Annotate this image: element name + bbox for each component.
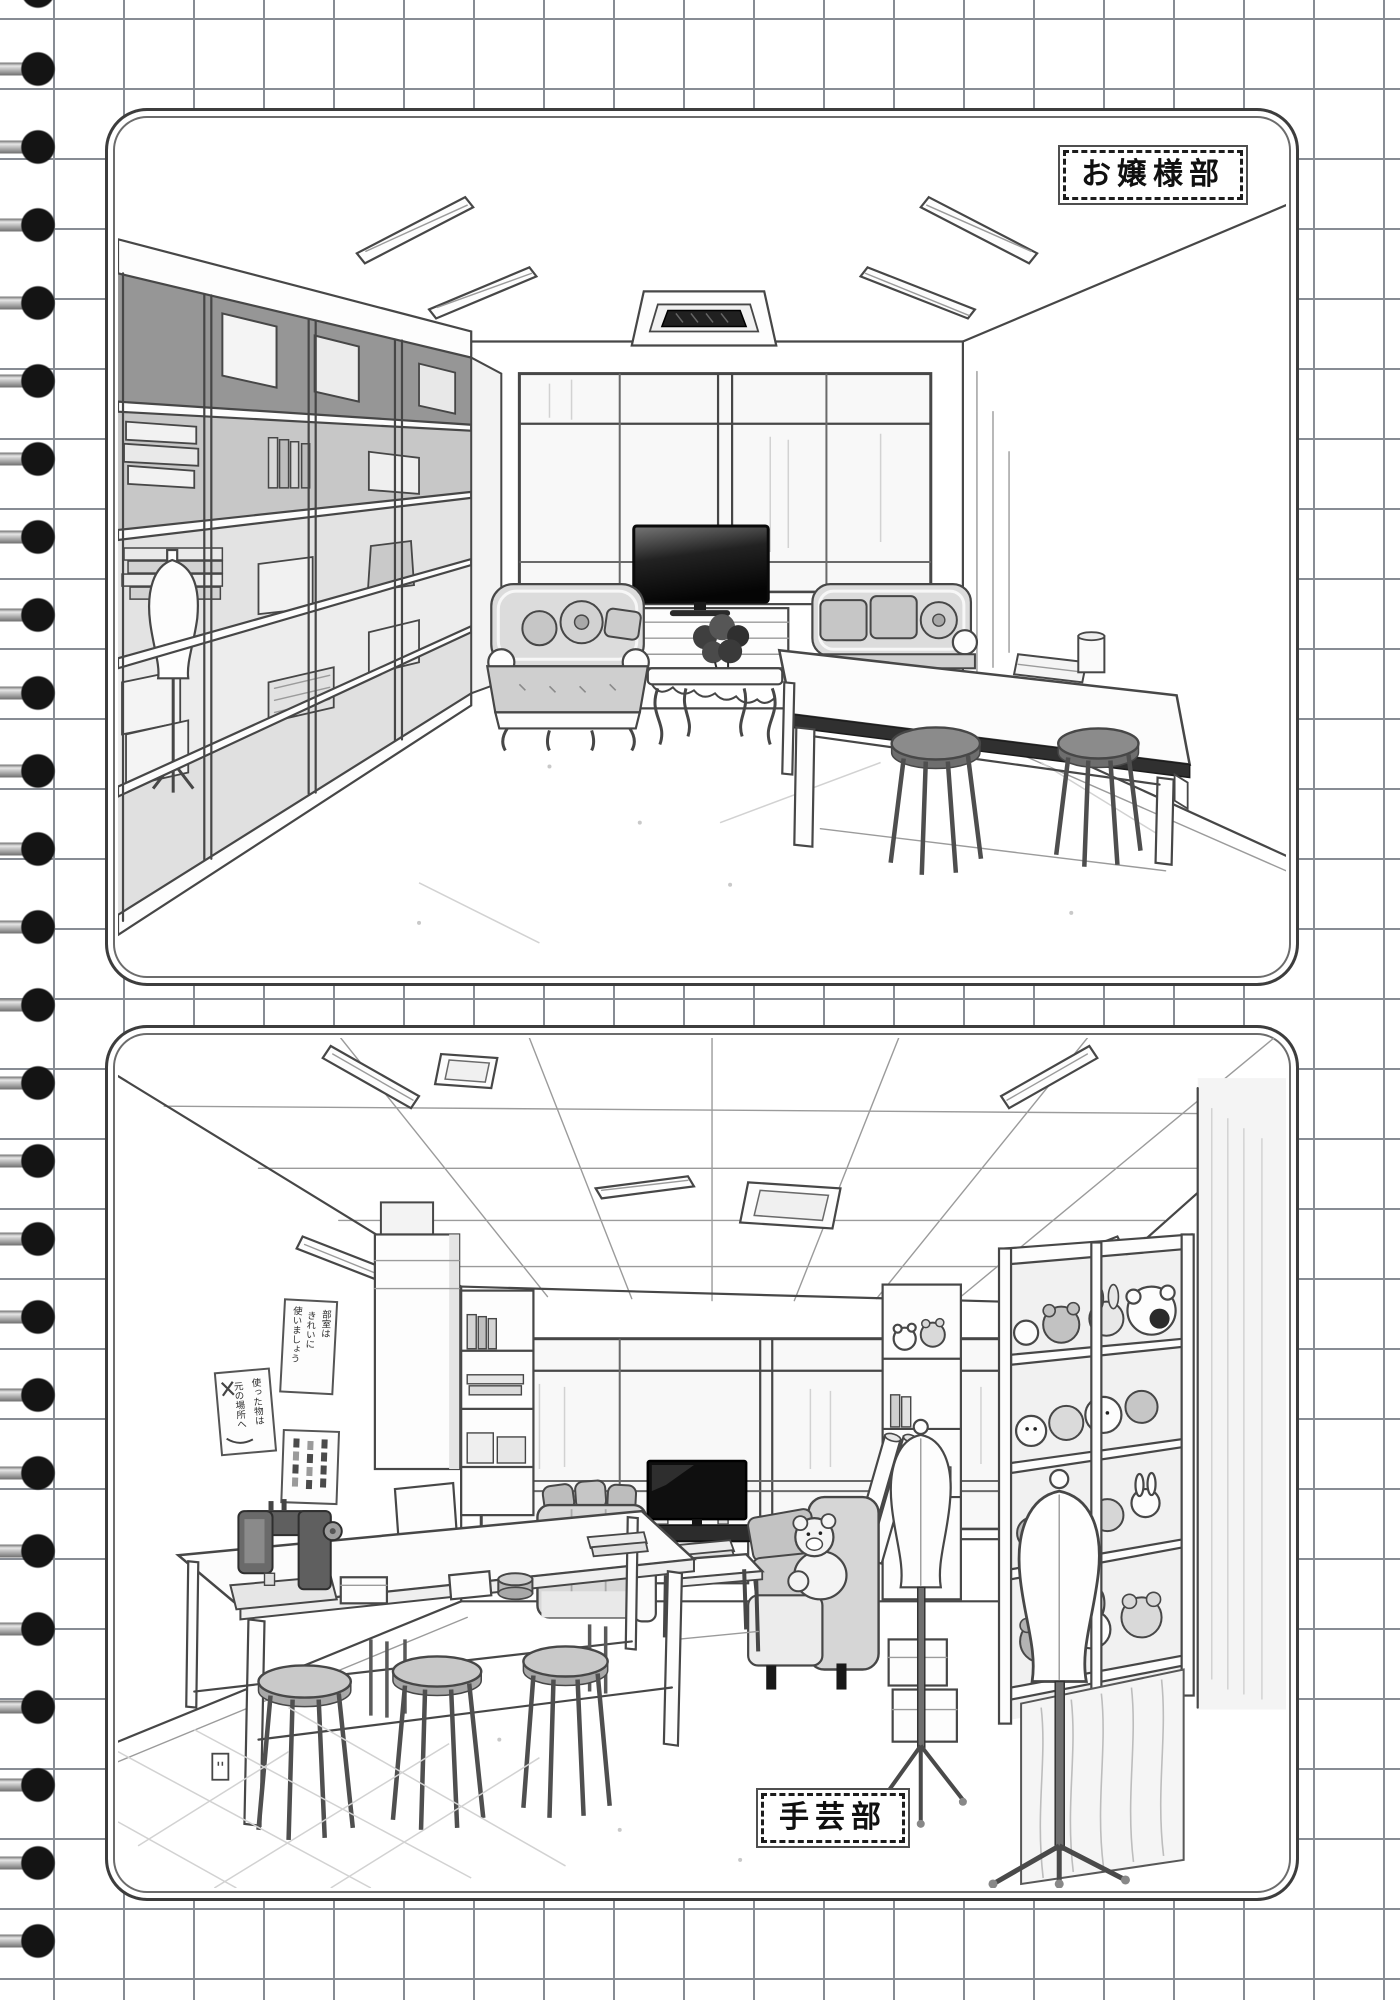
handicrafts-room-illustration: 部室は きれいに 使いましょう 使った物は 元の場所へ xyxy=(118,1038,1286,1888)
ornate-sofa-left xyxy=(487,584,649,750)
poster-2: 使った物は 元の場所へ xyxy=(215,1369,276,1456)
cup-on-table xyxy=(1078,632,1104,672)
ojousama-room-illustration xyxy=(118,121,1286,971)
television xyxy=(634,526,768,616)
wall-outlet xyxy=(1175,775,1188,809)
room-label-text: 手芸部 xyxy=(761,1793,905,1843)
panel-handicrafts-club: 部室は きれいに 使いましょう 使った物は 元の場所へ xyxy=(105,1025,1299,1901)
stool xyxy=(523,1646,609,1817)
room-label-handicrafts: 手芸部 xyxy=(756,1788,910,1848)
poster-1: 部室は きれいに 使いましょう xyxy=(280,1299,337,1394)
spiral-binding xyxy=(0,0,64,2000)
ornate-coffee-table xyxy=(648,668,782,744)
poster-3 xyxy=(281,1430,339,1504)
stool xyxy=(891,727,981,874)
round-tins xyxy=(498,1573,532,1599)
stool xyxy=(393,1656,483,1829)
stool xyxy=(258,1665,352,1839)
wall-shelf-unit xyxy=(118,239,501,935)
floor-tiles xyxy=(118,1708,742,1888)
panel-ojousama-club: お嬢様部 xyxy=(105,108,1299,986)
room-label-text: お嬢様部 xyxy=(1063,150,1243,200)
notebook-page: お嬢様部 xyxy=(0,0,1400,2000)
right-wall-strip xyxy=(1198,1078,1286,1709)
cubby-shelf xyxy=(461,1291,533,1516)
floor-specks xyxy=(417,765,1073,925)
room-label-ojousama: お嬢様部 xyxy=(1058,145,1248,205)
wall-outlet xyxy=(212,1754,228,1780)
tall-cabinet xyxy=(375,1202,459,1469)
ceiling-vent xyxy=(435,1054,840,1228)
air-conditioner xyxy=(632,291,776,345)
big-shelf xyxy=(999,1234,1194,1723)
